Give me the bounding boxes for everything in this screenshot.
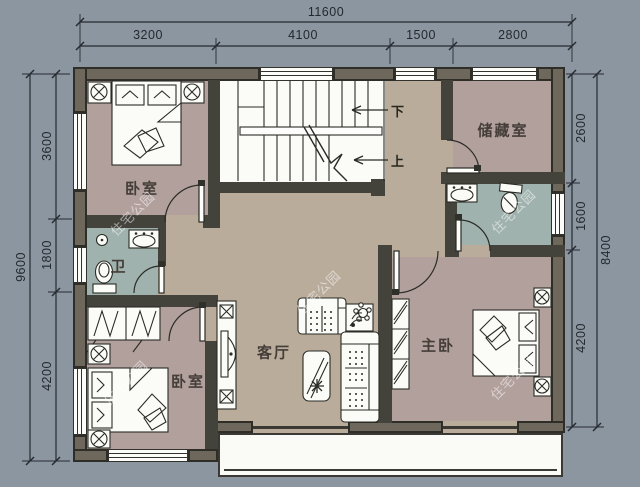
- room-master-bedroom: [392, 257, 551, 421]
- wall-left-1: [73, 67, 87, 113]
- label-stair-up: 上: [391, 151, 404, 170]
- dim-right-total: 8400: [599, 235, 613, 265]
- dim-left-seg-1: 1800: [40, 240, 54, 270]
- wall-bottom-mid-3: [517, 421, 565, 433]
- dim-left-seg-0: 3600: [40, 131, 54, 161]
- dim-right-seg-2: 4200: [574, 323, 588, 353]
- floor-plan: 卧室 储藏室 卫 客厅 主卧 卧室 下 上 11600 3200 4100 15…: [0, 0, 640, 487]
- wall-bath1-right: [158, 228, 166, 266]
- dim-top-total: 11600: [308, 5, 344, 19]
- wall-stair-bottom-cap: [371, 179, 385, 196]
- wall-bath1-bottom: [87, 295, 218, 307]
- dim-top-seg-1: 4100: [288, 28, 318, 42]
- wall-stair-bottom: [218, 182, 385, 193]
- wall-bedroom2-right: [205, 341, 218, 449]
- wall-bottom-left-2: [188, 449, 218, 462]
- wall-bedroom1-bottom-b: [203, 215, 220, 228]
- dim-top-seg-3: 2800: [498, 28, 528, 42]
- window-left-bath1: [73, 247, 87, 283]
- dim-top-seg-2: 1500: [406, 28, 436, 42]
- wall-storage-left: [441, 80, 453, 140]
- stairwell-floor: [220, 80, 385, 182]
- dim-right-seg-0: 2600: [574, 113, 588, 143]
- balcony-door-living: [253, 426, 348, 429]
- window-left-bedroom2: [73, 368, 87, 435]
- wall-top-3: [435, 67, 472, 81]
- wall-right-2: [551, 235, 565, 433]
- window-top-stair-2: [395, 67, 435, 81]
- dim-left-total: 9600: [14, 252, 28, 282]
- wall-storage-bottom: [441, 172, 565, 184]
- dim-right-seg-1: 1600: [574, 201, 588, 231]
- window-right-bath2: [551, 193, 565, 235]
- balcony-rail: [224, 469, 557, 471]
- label-living: 客厅: [257, 342, 291, 363]
- window-left-bedroom1: [73, 113, 87, 190]
- wall-left-3: [73, 283, 87, 368]
- window-top-stair-1: [260, 67, 333, 81]
- wall-top-2: [333, 67, 395, 81]
- label-bath-left: 卫: [110, 256, 127, 277]
- window-bottom-bedroom2: [108, 449, 188, 462]
- label-master: 主卧: [421, 335, 455, 356]
- label-stair-down: 下: [391, 101, 404, 120]
- label-storage: 储藏室: [477, 120, 528, 141]
- balcony-door-master: [443, 426, 517, 429]
- label-bedroom-bottom: 卧室: [171, 371, 205, 392]
- wall-bedroom1-right: [208, 80, 220, 228]
- wall-bath2-bottom-a: [445, 245, 459, 257]
- wall-bottom-mid-2: [348, 421, 443, 433]
- wall-bath2-bottom-b: [490, 245, 565, 257]
- wall-bottom-left-1: [73, 449, 108, 462]
- window-top-storage: [472, 67, 537, 81]
- wall-left-2: [73, 190, 87, 247]
- dim-top-seg-0: 3200: [133, 28, 163, 42]
- wall-top-1: [73, 67, 260, 81]
- dim-left-seg-2: 4200: [40, 361, 54, 391]
- wall-living-master: [378, 245, 392, 423]
